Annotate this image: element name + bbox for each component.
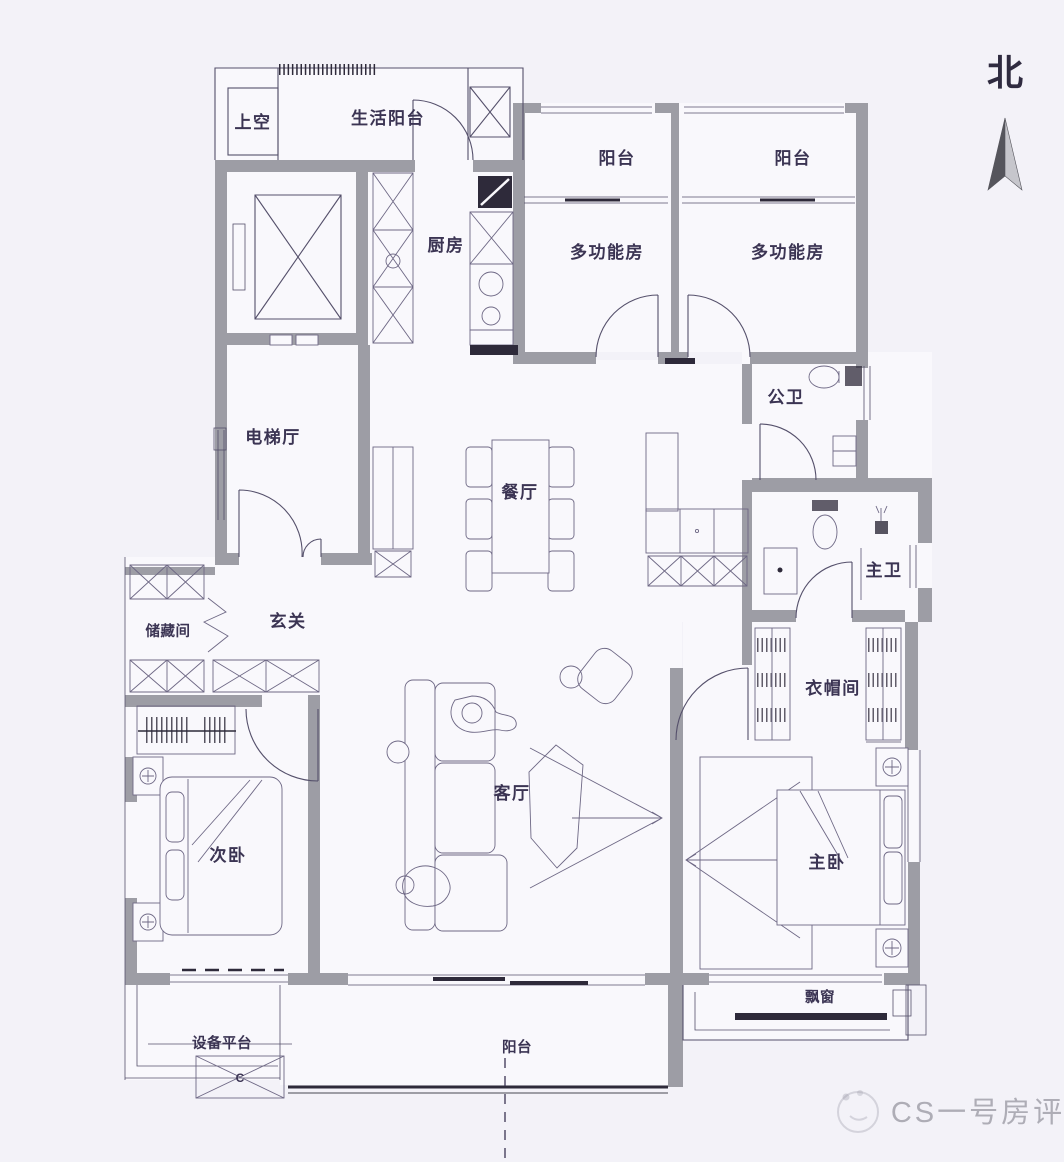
room-label-equipment-platform: 设备平台 [192,1034,252,1052]
room-label-multi-right: 多功能房 [751,242,825,262]
room-label-storage: 储藏间 [146,622,191,640]
floor-plan-page: C CS一号房评 北 上空 生活阳台 阳台 阳台 多功能房 多功能房 厨房 公卫… [0,0,1064,1162]
room-label-dining: 餐厅 [502,482,539,502]
room-label-multi-left: 多功能房 [570,242,644,262]
north-arrow-icon [988,118,1022,190]
room-label-cloakroom: 衣帽间 [805,678,861,698]
room-label-master-bedroom: 主卧 [809,852,846,872]
room-label-public-bathroom: 公卫 [768,388,805,407]
room-label-second-bedroom: 次卧 [210,845,247,865]
room-label-void: 上空 [235,112,272,132]
ac-unit-label: C [236,1071,245,1085]
room-label-north-balcony-left: 阳台 [599,148,636,168]
room-label-south-balcony: 阳台 [502,1038,532,1056]
north-label: 北 [987,53,1023,93]
room-label-bay-window: 飘窗 [805,988,835,1006]
room-label-service-balcony: 生活阳台 [351,108,425,128]
room-label-master-bathroom: 主卫 [866,560,903,580]
sofa [387,680,507,931]
room-label-living: 客厅 [493,783,531,803]
watermark: CS一号房评 [838,1090,1064,1132]
room-label-foyer: 玄关 [270,611,307,631]
dining-table [466,440,574,591]
floor-plan: C CS一号房评 北 上空 生活阳台 阳台 阳台 多功能房 多功能房 厨房 公卫… [0,0,1064,1162]
room-label-elevator-hall: 电梯厅 [245,427,301,447]
watermark-text: CS一号房评 [891,1096,1064,1129]
room-label-north-balcony-right: 阳台 [775,148,812,168]
room-label-kitchen: 厨房 [428,235,465,255]
